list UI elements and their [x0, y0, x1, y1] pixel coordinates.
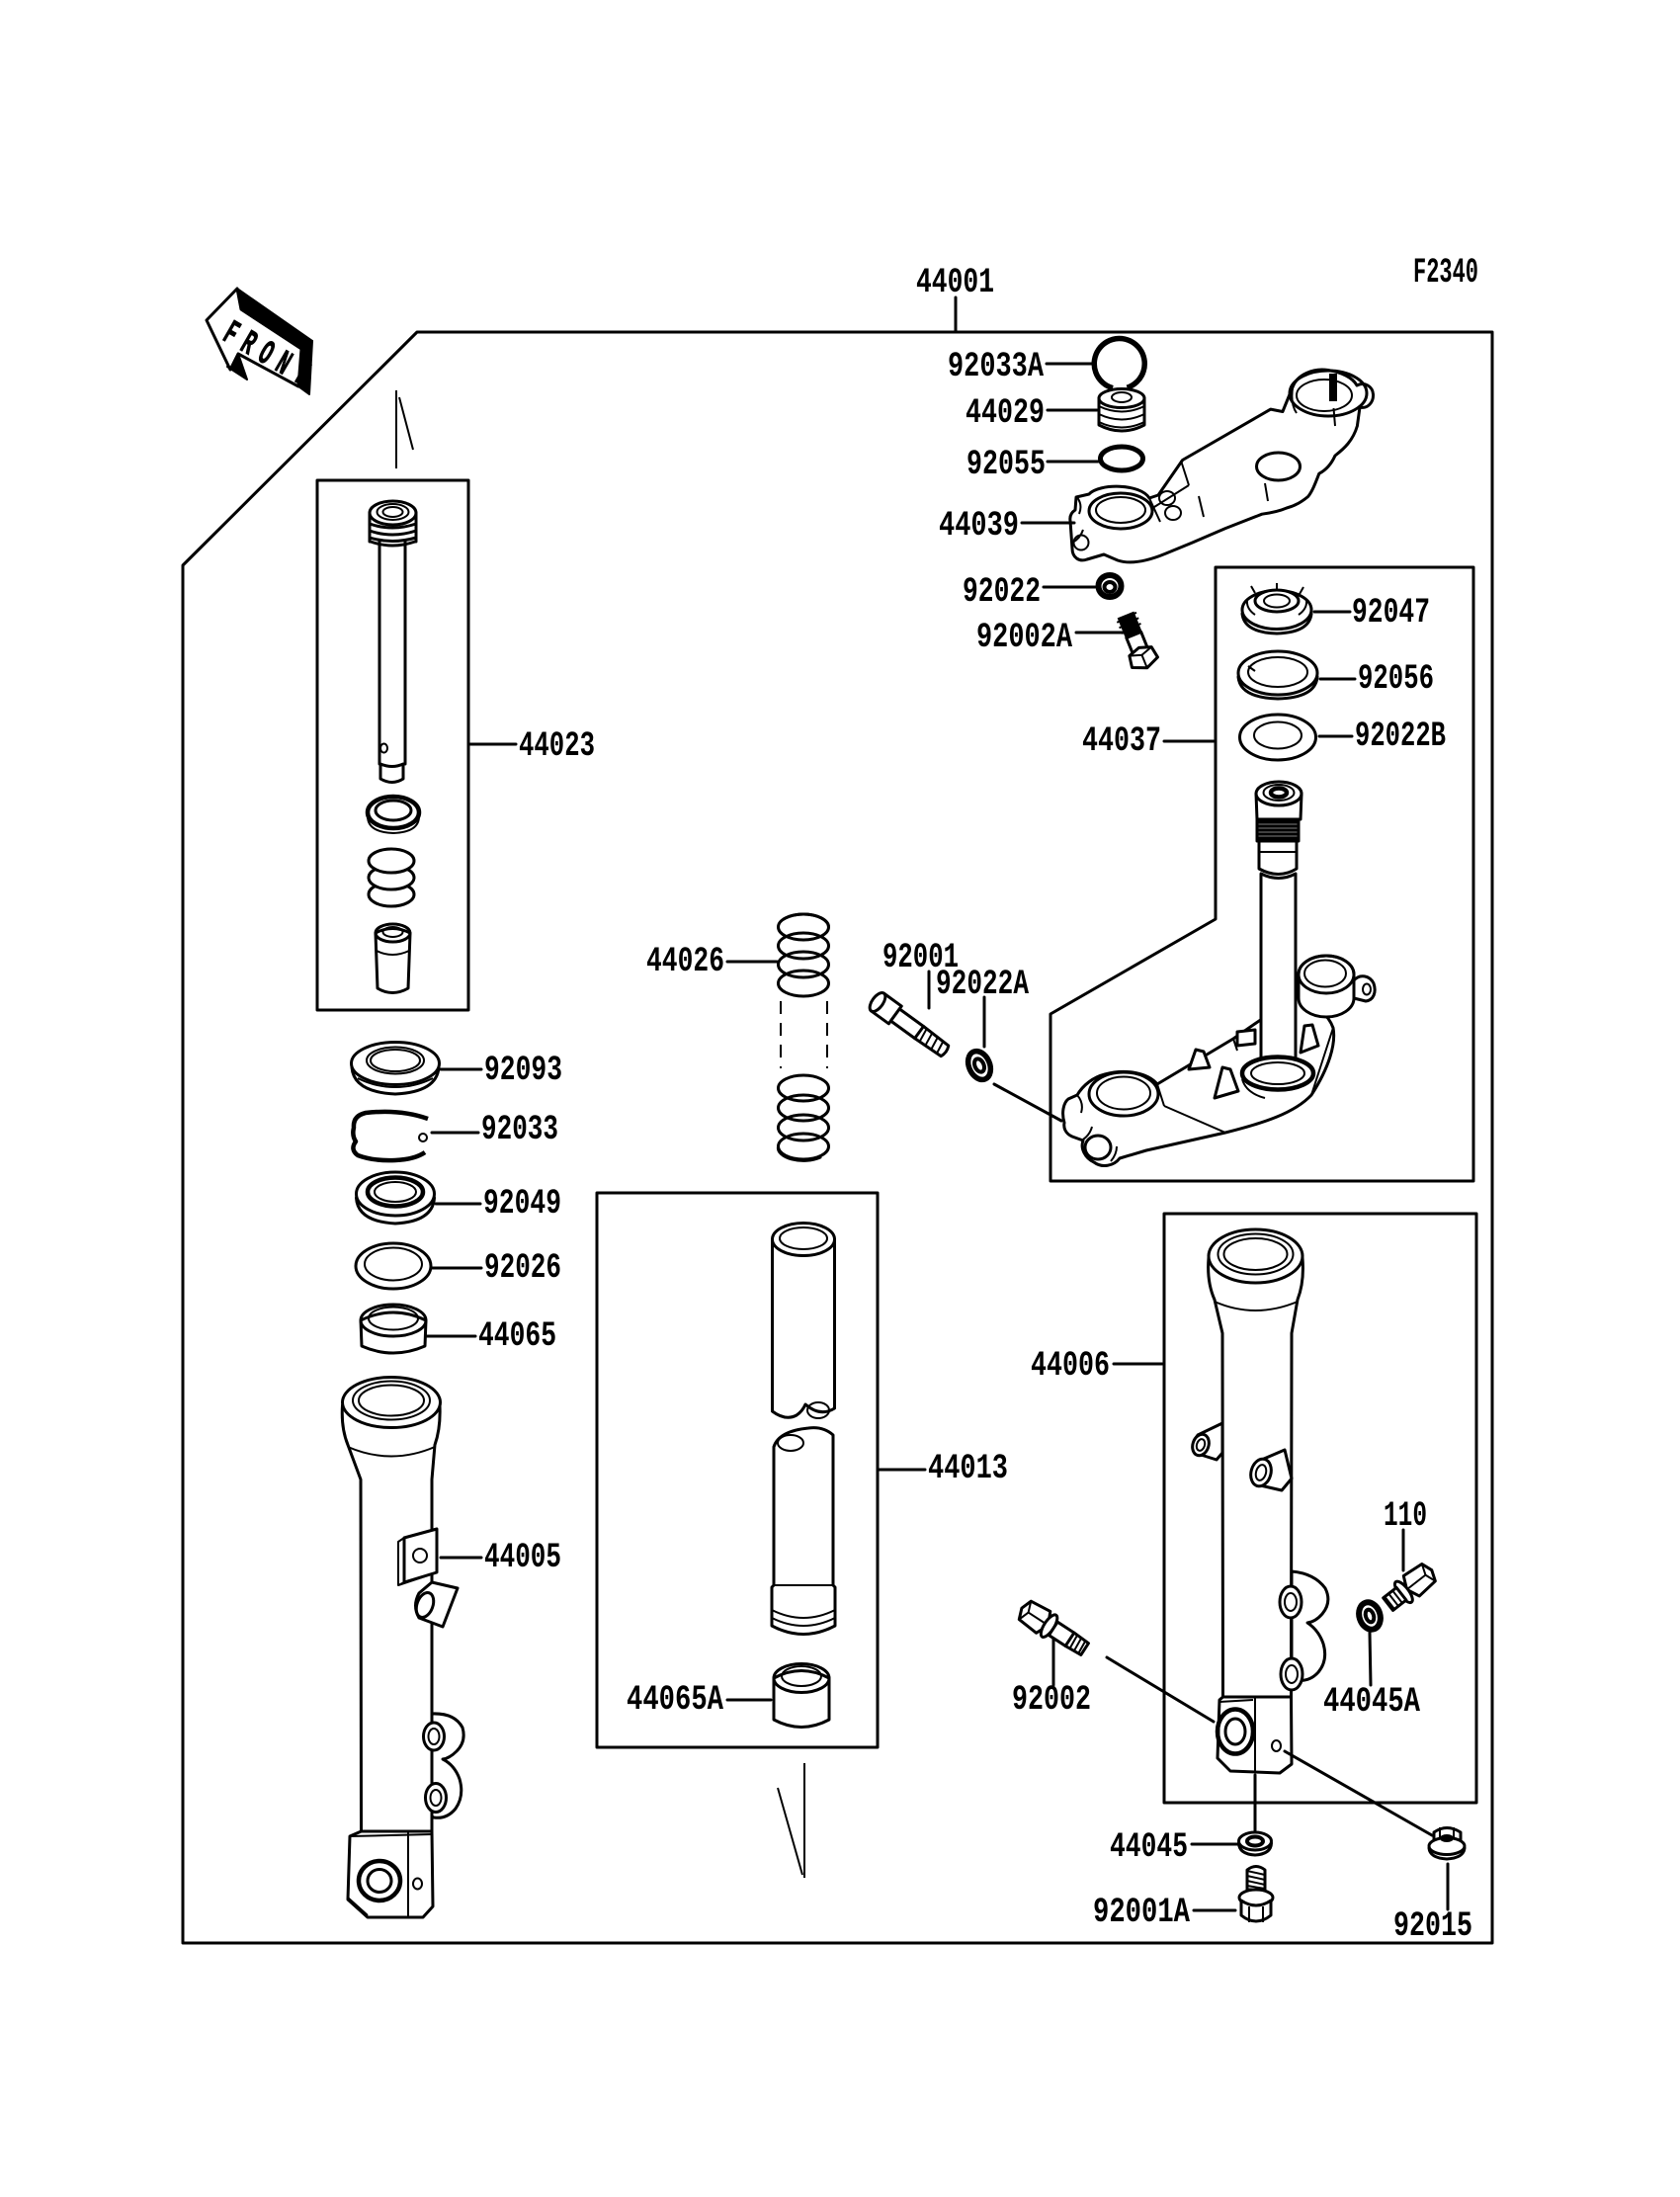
svg-text:44037: 44037 [1082, 721, 1161, 761]
svg-text:92001A: 92001A [1093, 1893, 1190, 1932]
svg-text:92022: 92022 [963, 572, 1041, 612]
svg-text:92033A: 92033A [948, 347, 1044, 386]
svg-text:92022B: 92022B [1355, 717, 1446, 756]
svg-text:44045: 44045 [1110, 1827, 1188, 1867]
svg-text:110: 110 [1384, 1496, 1427, 1536]
svg-text:92093: 92093 [484, 1051, 562, 1090]
svg-text:44005: 44005 [484, 1538, 561, 1577]
svg-text:44029: 44029 [966, 393, 1045, 433]
svg-text:44065: 44065 [478, 1316, 556, 1356]
svg-text:92056: 92056 [1358, 659, 1434, 699]
svg-text:92033: 92033 [481, 1110, 558, 1149]
svg-text:92022A: 92022A [936, 965, 1029, 1004]
svg-text:44045A: 44045A [1323, 1682, 1420, 1722]
svg-text:44065A: 44065A [627, 1680, 723, 1720]
svg-text:92026: 92026 [484, 1248, 561, 1288]
svg-text:92002: 92002 [1012, 1680, 1091, 1720]
svg-text:92055: 92055 [966, 445, 1046, 484]
svg-text:44039: 44039 [939, 506, 1019, 546]
svg-text:92002A: 92002A [976, 618, 1072, 657]
svg-text:92049: 92049 [483, 1184, 561, 1224]
svg-text:F2340: F2340 [1413, 253, 1478, 293]
svg-text:44026: 44026 [646, 942, 724, 981]
svg-text:44023: 44023 [519, 726, 595, 766]
svg-text:92015: 92015 [1393, 1906, 1472, 1946]
svg-text:44006: 44006 [1031, 1346, 1110, 1386]
svg-text:92047: 92047 [1352, 593, 1430, 633]
svg-text:44013: 44013 [928, 1449, 1008, 1488]
